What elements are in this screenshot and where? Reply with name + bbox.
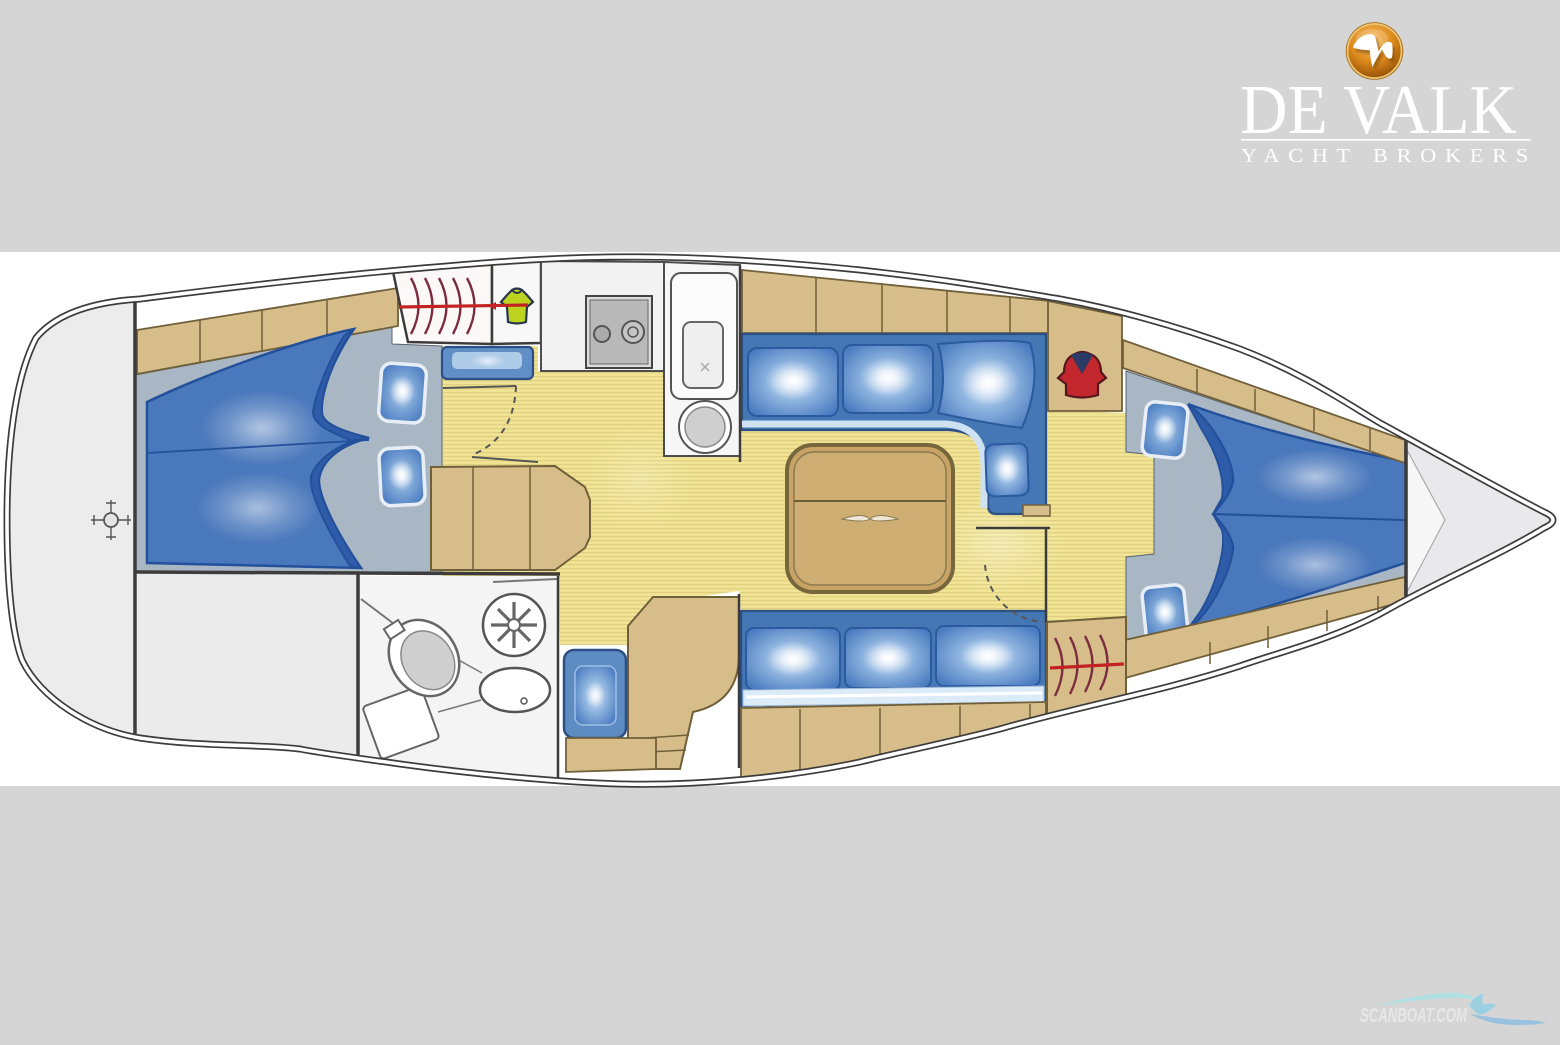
svg-text:SCANBOAT.COM: SCANBOAT.COM: [1360, 1005, 1468, 1027]
svg-text:YACHT BROKERS: YACHT BROKERS: [1241, 145, 1537, 167]
svg-text:DE VALK: DE VALK: [1240, 72, 1517, 149]
